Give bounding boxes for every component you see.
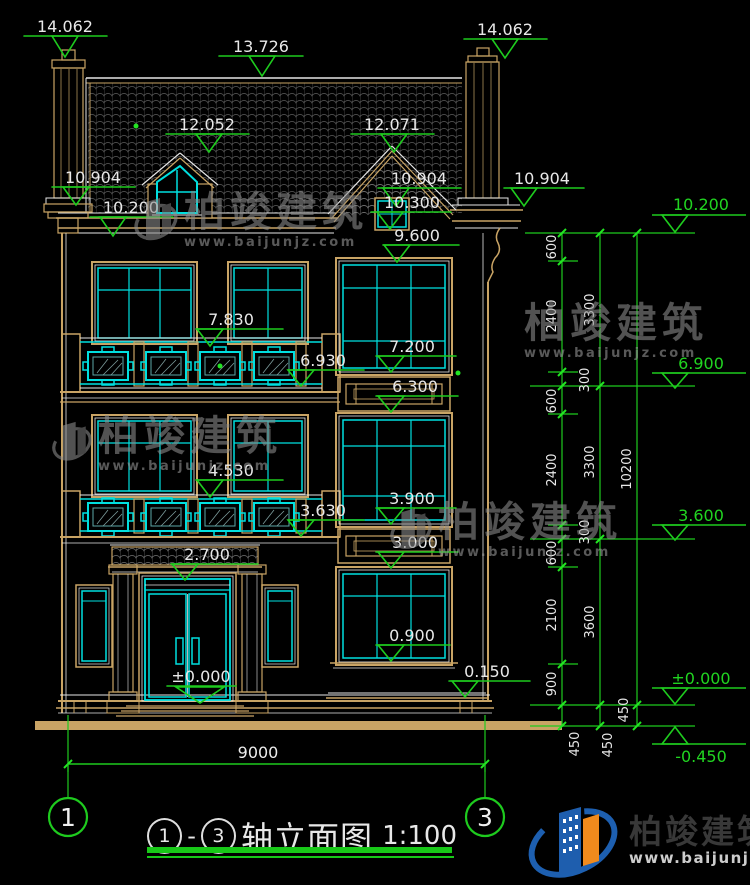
- dim-label: 3300: [583, 293, 598, 326]
- level-marker: 7.200: [376, 337, 456, 372]
- title-underline-thin: [147, 856, 454, 858]
- level-marker: 9.600: [383, 226, 459, 262]
- snap-dot: [218, 364, 223, 369]
- level-label: 14.062: [477, 20, 533, 39]
- level-label: 3.600: [678, 506, 724, 525]
- level-label: 3.900: [389, 489, 435, 508]
- brand-logo: 柏竣建筑 www.baijunjz.com: [523, 799, 750, 883]
- level-label: 6.930: [300, 351, 346, 370]
- window: [228, 262, 308, 344]
- brand-logo-icon: [523, 799, 623, 883]
- axis-number: 1: [60, 803, 76, 832]
- window: [92, 262, 197, 344]
- dim-label: 3600: [583, 605, 598, 638]
- level-label: -0.450: [675, 747, 727, 766]
- level-label: 7.200: [389, 337, 435, 356]
- level-label: ±0.000: [171, 667, 230, 686]
- dim-label: 600: [545, 389, 560, 414]
- brand-name: 柏竣建筑: [629, 815, 750, 850]
- level-label: 3.000: [392, 533, 438, 552]
- level-label: 13.726: [233, 37, 289, 56]
- window: [330, 567, 458, 668]
- ground-line: [35, 721, 562, 730]
- right-column: [330, 258, 458, 668]
- right-pillar: [458, 48, 508, 205]
- level-marker: 6.300: [376, 377, 458, 412]
- level-marker: 0.900: [376, 626, 450, 661]
- door-handle: [192, 638, 199, 664]
- level-marker: 0.150: [449, 662, 530, 697]
- level-marker: 3.900: [376, 489, 456, 524]
- level-marker: 10.200: [652, 195, 746, 232]
- side-window: [76, 585, 112, 667]
- dim-label: 2400: [545, 453, 560, 486]
- dim-label: 600: [545, 235, 560, 260]
- level-label: 12.052: [179, 115, 235, 134]
- level-label: 10.904: [65, 168, 121, 187]
- level-label: 12.071: [364, 115, 420, 134]
- cad-elevation-drawing: 14.062 13.726 14.062 12.052 12.071 10.90…: [0, 0, 750, 885]
- level-marker: 13.726: [219, 37, 303, 76]
- dim-label: 600: [545, 541, 560, 566]
- level-label: 7.830: [208, 310, 254, 329]
- level-marker: 14.062: [24, 17, 107, 57]
- level-marker: 10.904: [504, 169, 584, 206]
- side-window: [262, 585, 298, 667]
- title-separator: -: [187, 822, 196, 850]
- dim-label: 450: [601, 733, 616, 758]
- dim-label: 300: [578, 368, 593, 393]
- level-label: 0.150: [464, 662, 510, 681]
- level-label: 2.700: [184, 545, 230, 564]
- dim-label: 3300: [583, 445, 598, 478]
- level-label: ±0.000: [671, 669, 730, 688]
- level-label: 0.900: [389, 626, 435, 645]
- elevation-svg: 14.062 13.726 14.062 12.052 12.071 10.90…: [0, 0, 750, 885]
- window: [336, 413, 452, 527]
- window: [228, 415, 308, 497]
- level-label: 3.630: [300, 501, 346, 520]
- level-label: 6.300: [392, 377, 438, 396]
- dim-label: 900: [545, 672, 560, 697]
- level-label: 10.200: [673, 195, 729, 214]
- dim-label: 300: [578, 520, 593, 545]
- snap-dot: [456, 371, 461, 376]
- level-label: 10.300: [384, 193, 440, 212]
- dim-label: 450: [617, 698, 632, 723]
- dim-label: 450: [568, 732, 583, 757]
- axis-number: 3: [477, 803, 493, 832]
- dimension-chains: 600 2400 300 600 2400 300 600 2100 900 4…: [525, 195, 746, 766]
- level-label: 4.530: [208, 461, 254, 480]
- level-marker: -0.450: [652, 727, 746, 766]
- title-underline-thick: [147, 847, 452, 853]
- balcony-railing: [60, 491, 340, 543]
- level-label: 10.904: [514, 169, 570, 188]
- level-label: 9.600: [394, 226, 440, 245]
- level-marker: ±0.000: [652, 669, 746, 704]
- snap-dot: [134, 124, 139, 129]
- level-label: 6.900: [678, 354, 724, 373]
- level-label: 10.200: [103, 198, 159, 217]
- dim-label: 2400: [545, 299, 560, 332]
- dim-label: 9000: [238, 743, 279, 762]
- brand-url: www.baijunjz.com: [629, 849, 750, 867]
- door-handle: [176, 638, 183, 664]
- window: [92, 415, 197, 497]
- level-marker: 3.600: [652, 506, 746, 540]
- level-marker: 6.900: [652, 354, 746, 388]
- level-label: 10.904: [391, 169, 447, 188]
- window: [336, 258, 452, 375]
- level-label: 14.062: [37, 17, 93, 36]
- dim-label: 10200: [620, 448, 635, 489]
- dim-label: 2100: [545, 598, 560, 631]
- left-pillar: [44, 50, 92, 233]
